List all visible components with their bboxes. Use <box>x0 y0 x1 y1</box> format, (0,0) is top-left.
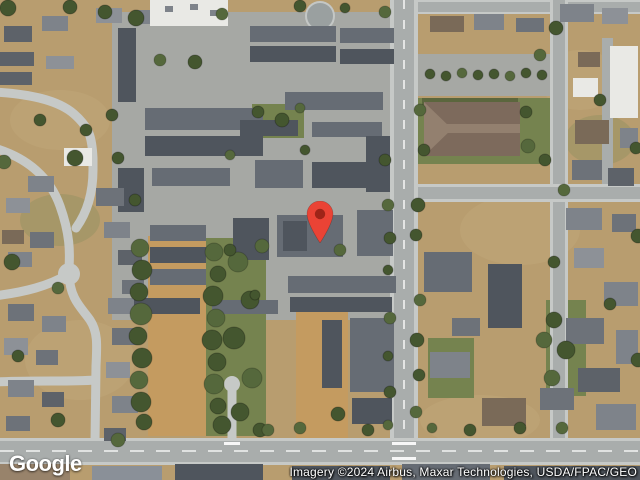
location-pin-icon[interactable] <box>306 201 334 243</box>
imagery-attribution: Imagery ©2024 Airbus, Maxar Technologies… <box>289 465 637 479</box>
google-logo: Google <box>9 451 82 477</box>
map-viewport[interactable]: Google Imagery ©2024 Airbus, Maxar Techn… <box>0 0 640 480</box>
